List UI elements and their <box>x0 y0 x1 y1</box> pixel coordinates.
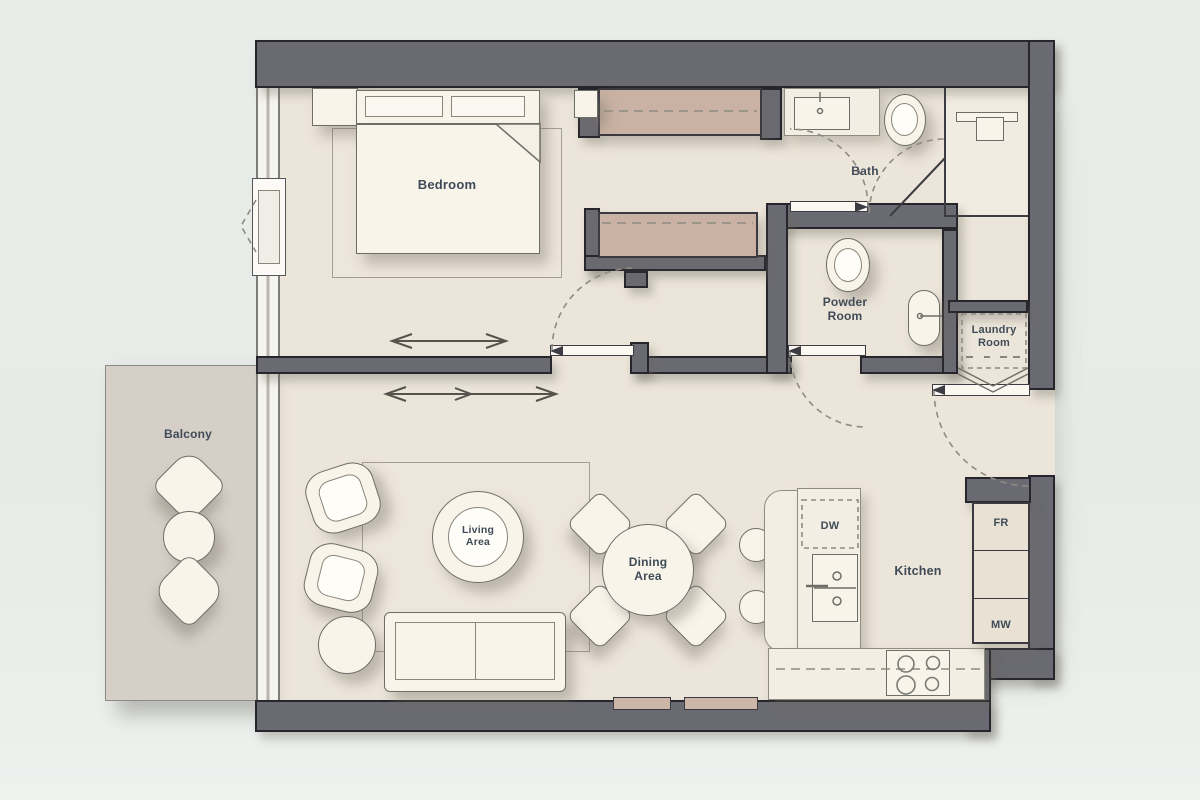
microwave-label: MW <box>984 619 1018 632</box>
laundry-room-label: Laundry Room <box>955 324 1033 349</box>
cabinet-divider-1 <box>974 550 1028 551</box>
powder-toilet-bowl <box>834 248 862 282</box>
sofa <box>384 612 566 692</box>
bath-label: Bath <box>830 165 900 179</box>
wardrobe-closet-hall <box>598 212 758 258</box>
side-table <box>318 616 376 674</box>
wall-top <box>255 40 1055 88</box>
bed-headboard <box>356 90 540 124</box>
sofa-seat-divider <box>475 622 476 680</box>
pillow-left <box>365 96 443 117</box>
balcony-table <box>163 511 215 563</box>
kitchen-label: Kitchen <box>880 564 956 578</box>
nightstand-left <box>312 88 358 126</box>
kitchen-peninsula-back <box>764 490 800 652</box>
wall-niche-1 <box>613 697 671 710</box>
dishwasher-label: DW <box>810 520 850 533</box>
bedroom-door <box>550 345 634 356</box>
bath-door <box>790 201 868 212</box>
wall-fridge-top <box>965 477 1031 503</box>
powder-sink <box>908 290 940 346</box>
bedroom-label: Bedroom <box>387 178 507 193</box>
wardrobe-closet-top <box>598 88 762 136</box>
dining-area-label: Dining Area <box>608 556 688 584</box>
shower-head <box>976 117 1004 141</box>
pillow-right <box>451 96 525 117</box>
cooktop <box>886 650 950 696</box>
entry-threshold <box>1028 390 1055 476</box>
nightstand-right <box>574 90 598 118</box>
wall-niche-2 <box>684 697 758 710</box>
wall-bedroom-south <box>256 356 552 374</box>
floor-plan-canvas: Bedroom Bath Powder Room Laundry Room Ki… <box>0 0 1200 800</box>
armchair-2-seat <box>315 552 368 603</box>
powder-room-label: Powder Room <box>805 296 885 324</box>
balcony-label: Balcony <box>138 428 238 442</box>
kitchen-sink <box>812 554 858 622</box>
wall-powder-left <box>766 203 788 374</box>
wall-closet1-stub-right <box>760 88 782 140</box>
window-vent-inner <box>258 190 280 264</box>
bath-sink <box>794 97 850 130</box>
living-area-label: Living Area <box>433 524 523 548</box>
powder-door <box>788 345 866 356</box>
kitchen-counter-bottom <box>768 648 985 700</box>
entry-door <box>932 384 1030 396</box>
cabinet-divider-2 <box>974 598 1028 599</box>
fridge-label: FR <box>984 517 1018 530</box>
shower-floor <box>945 88 1030 218</box>
wall-laundry-top <box>948 300 1028 313</box>
bath-toilet-bowl <box>891 103 918 136</box>
armchair-1-seat <box>316 471 371 525</box>
wall-hall-stub <box>624 271 648 288</box>
powder-toilet <box>826 238 870 292</box>
bath-toilet <box>884 94 926 146</box>
